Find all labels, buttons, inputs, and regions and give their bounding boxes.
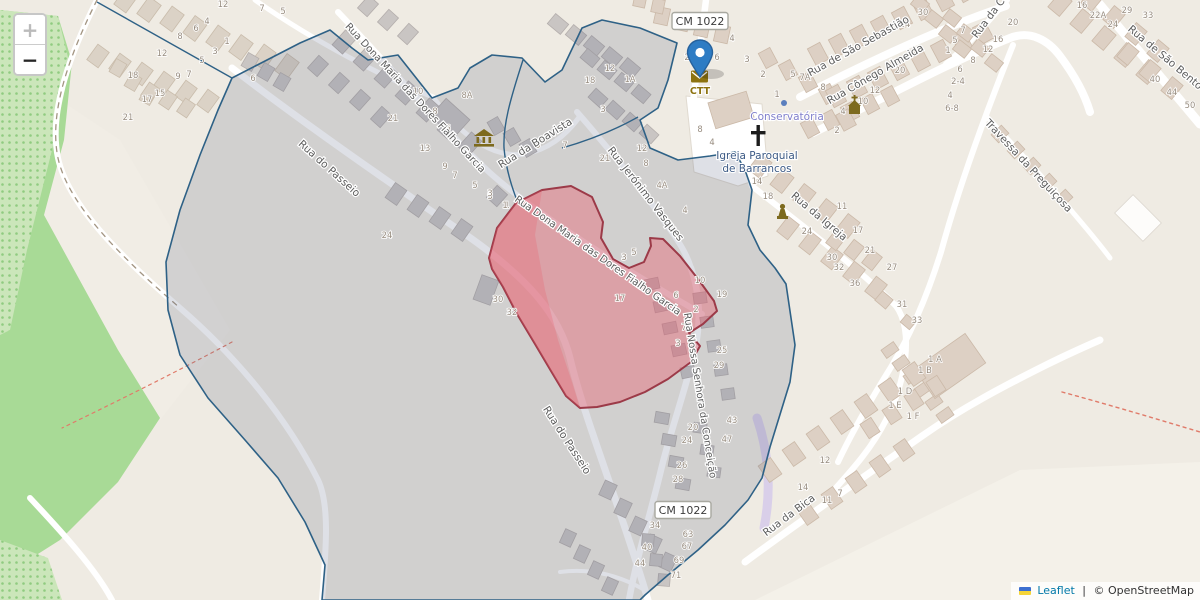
house-number: 14 <box>752 176 763 186</box>
house-number: 7 <box>259 3 264 13</box>
house-number: 44 <box>1167 87 1178 97</box>
house-number: 14 <box>798 482 809 492</box>
house-number: 17 <box>615 293 626 303</box>
church-label-line2: de Barrancos <box>722 163 791 175</box>
house-number: 9 <box>442 161 447 171</box>
house-number: 33 <box>1143 10 1154 20</box>
house-number: 47 <box>722 434 733 444</box>
house-number: 4 <box>729 33 734 43</box>
ctt-label: CTT <box>690 86 711 97</box>
house-number: 4 <box>204 16 209 26</box>
house-number: 5 <box>199 55 204 65</box>
house-number: 5 <box>472 180 477 190</box>
map-viewport[interactable]: 1275468131251897171521624108A86211397531… <box>0 0 1200 600</box>
house-number: 1 E <box>888 400 901 410</box>
house-number: 21 <box>865 245 876 255</box>
house-number: 7 <box>452 170 457 180</box>
conservatoria-label: Conservatória <box>750 111 824 123</box>
house-number: 6 <box>250 73 255 83</box>
map-canvas[interactable]: 1275468131251897171521624108A86211397531… <box>0 0 1200 600</box>
osm-credit: © OpenStreetMap <box>1093 584 1194 597</box>
house-number: 40 <box>1150 74 1161 84</box>
ukraine-flag-icon <box>1019 587 1031 595</box>
house-number: 12 <box>218 0 229 9</box>
building <box>651 0 666 14</box>
house-number: 5 <box>790 69 795 79</box>
house-number: 17 <box>853 225 864 235</box>
house-number: 20 <box>1008 17 1019 27</box>
house-number: 1 F <box>907 411 920 421</box>
house-number: 30 <box>493 294 504 304</box>
house-number: 4 <box>947 90 952 100</box>
house-number: 8 <box>177 31 182 41</box>
house-number: 67 <box>682 541 693 551</box>
house-number: 5 <box>631 247 636 257</box>
house-number: 3 <box>621 252 626 262</box>
zoom-control: + − <box>13 13 47 76</box>
house-number: 16 <box>1077 0 1088 10</box>
house-number: 26 <box>677 460 688 470</box>
house-number: 8 <box>820 82 825 92</box>
house-number: 11 <box>822 495 833 505</box>
house-number: 1 <box>945 45 950 55</box>
house-number: 10 <box>695 275 706 285</box>
house-number: 63 <box>683 529 694 539</box>
house-number: 69 <box>674 555 685 565</box>
house-number: 22A <box>1090 10 1107 20</box>
house-number: 4 <box>682 205 687 215</box>
leaflet-link[interactable]: Leaflet <box>1037 584 1074 597</box>
house-number: 1 A <box>928 354 942 364</box>
house-number: 27 <box>887 262 898 272</box>
house-number: 3 <box>487 188 492 198</box>
house-number: 71 <box>671 570 682 580</box>
house-number: 2-4 <box>951 76 965 86</box>
house-number: 12 <box>870 85 881 95</box>
house-number: 8A <box>461 90 472 100</box>
road-ref-text: CM 1022 <box>659 504 708 517</box>
house-number: 19 <box>717 289 728 299</box>
house-number: 12 <box>820 455 831 465</box>
house-number: 8 <box>697 124 702 134</box>
house-number: 5 <box>280 6 285 16</box>
house-number: 7 <box>562 140 567 150</box>
church-label-line1: Igreja Paroquial <box>716 150 797 162</box>
house-number: 32 <box>834 262 845 272</box>
house-number: 12 <box>157 48 168 58</box>
house-number: 1 D <box>898 386 912 396</box>
house-number: 18 <box>763 191 774 201</box>
house-number: 1 B <box>918 365 932 375</box>
house-number: 20 <box>688 422 699 432</box>
zoom-in-button[interactable]: + <box>15 15 45 45</box>
house-number: 31 <box>897 299 908 309</box>
house-number: 43 <box>727 415 738 425</box>
house-number: 30 <box>827 252 838 262</box>
house-number: 2 <box>760 69 765 79</box>
house-number: 6-8 <box>945 103 959 113</box>
house-number: 25 <box>717 345 728 355</box>
house-number: 6 <box>714 52 719 62</box>
house-number: 24 <box>382 230 393 240</box>
house-number: 3 <box>212 46 217 56</box>
house-number: 17 <box>142 94 153 104</box>
house-number: 4 <box>840 106 845 116</box>
house-number: 28 <box>673 474 684 484</box>
house-number: 18 <box>128 70 139 80</box>
house-number: 21 <box>123 112 134 122</box>
house-number: 50 <box>1185 100 1196 110</box>
house-number: 1 <box>774 89 779 99</box>
house-number: 24 <box>1108 19 1119 29</box>
attribution-separator: | <box>1079 584 1090 597</box>
house-number: 8 <box>643 158 648 168</box>
attribution-bar: Leaflet | © OpenStreetMap <box>1011 582 1200 600</box>
house-number: 29 <box>1122 5 1133 15</box>
house-number: 2 <box>834 125 839 135</box>
house-number: 24 <box>802 226 813 236</box>
house-number: 1 <box>502 200 507 210</box>
house-number: 30 <box>918 7 929 17</box>
house-number: 7 <box>186 69 191 79</box>
house-number: 6 <box>673 290 678 300</box>
house-number: 44 <box>635 558 646 568</box>
house-number: 3 <box>675 338 680 348</box>
house-number: 36 <box>850 278 861 288</box>
house-number: 1 <box>224 36 229 46</box>
house-number: 6 <box>193 23 198 33</box>
house-number: 9 <box>175 71 180 81</box>
house-number: 12 <box>637 143 648 153</box>
poi-dot <box>781 100 787 106</box>
house-number: 40 <box>642 542 653 552</box>
road-ref-text: CM 1022 <box>676 15 725 28</box>
house-number: 13 <box>420 143 431 153</box>
house-number: 5 <box>952 35 957 45</box>
house-number: 4A <box>656 180 667 190</box>
house-number: 34 <box>650 520 661 530</box>
house-number: 29 <box>714 360 725 370</box>
marker-pin-hole <box>695 48 704 57</box>
house-number: 2 <box>693 304 698 314</box>
zoom-out-button[interactable]: − <box>15 45 45 74</box>
house-number: 1A <box>624 74 635 84</box>
house-number: 32 <box>507 307 518 317</box>
house-number: 21 <box>388 113 399 123</box>
house-number: 15 <box>155 88 166 98</box>
house-number: 4 <box>709 137 714 147</box>
house-number: 8 <box>970 55 975 65</box>
house-number: 12 <box>983 44 994 54</box>
house-number: 16 <box>993 34 1004 44</box>
house-number: 11 <box>837 201 848 211</box>
house-number: 3 <box>600 104 605 114</box>
house-number: 18 <box>585 75 596 85</box>
house-number: 3 <box>744 54 749 64</box>
house-number: 24 <box>682 435 693 445</box>
house-number: 7 <box>837 488 842 498</box>
house-number: 33 <box>912 315 923 325</box>
house-number: 12 <box>605 63 616 73</box>
house-number: 6 <box>957 64 962 74</box>
house-number: 7 <box>960 25 965 35</box>
